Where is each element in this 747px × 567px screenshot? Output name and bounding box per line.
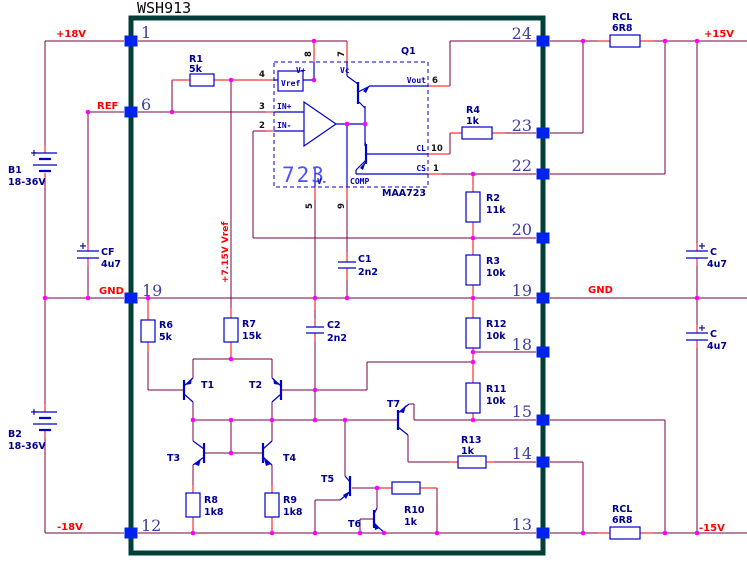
r10-val: 1k	[404, 517, 418, 528]
t3-label: T3	[167, 453, 180, 464]
resistor-rcl-bottom	[610, 527, 640, 539]
b2-ref: B2	[8, 429, 22, 440]
r7-ref: R7	[242, 319, 256, 330]
r11-ref: R11	[486, 384, 507, 395]
c1-val: 2n2	[358, 267, 378, 278]
resistor-r4	[462, 127, 492, 139]
pin-number-14: 14	[512, 444, 532, 463]
transistor-t6	[374, 508, 384, 532]
t7-label: T7	[387, 399, 400, 410]
resistor-r3	[466, 255, 480, 285]
net-label-plus15: +15V	[704, 29, 734, 40]
pin-square-18	[537, 347, 550, 358]
pin-number-24: 24	[512, 24, 532, 43]
c2-ref: C2	[327, 320, 341, 331]
pin-square-24	[537, 36, 550, 47]
c-top-val: 4u7	[707, 259, 727, 270]
pin-number-19-right: 19	[512, 281, 532, 300]
c-bottom-ref: C	[710, 329, 717, 340]
pin-number-6: 6	[141, 95, 151, 114]
r8-ref: R8	[204, 495, 218, 506]
pin-number-20: 20	[512, 220, 532, 239]
module-title: WSH913	[137, 0, 191, 17]
resistor-r8	[186, 493, 200, 517]
rcl-bottom-ref: RCL	[612, 504, 632, 515]
ic-num-cs: 1	[433, 164, 439, 174]
resistor-r1	[190, 74, 214, 86]
resistor-r12	[466, 318, 480, 348]
transistor-t1	[184, 378, 193, 402]
ic-label-vplus: V+	[296, 66, 306, 75]
c2-val: 2n2	[327, 333, 347, 344]
ic-num-vref: 4	[259, 70, 265, 80]
cap-cf	[77, 251, 99, 258]
ic-part-label: MAA723	[382, 188, 426, 199]
resistor-r11	[466, 383, 480, 413]
cap-c-top	[686, 251, 708, 258]
t4-label: T4	[283, 453, 296, 464]
pin-square-22	[537, 169, 550, 180]
pin-square-12	[125, 528, 138, 539]
r10-ref: R10	[404, 505, 425, 516]
pin-number-23: 23	[512, 116, 532, 135]
ic-vref-box-label: Vref	[281, 79, 300, 88]
r3-val: 10k	[486, 268, 506, 279]
t5-label: T5	[321, 474, 334, 485]
c-top-ref: C	[710, 247, 717, 258]
r4-ref: R4	[466, 105, 480, 116]
resistors	[141, 35, 640, 539]
net-label-ref: REF	[97, 101, 118, 112]
ic-label-vout: Vout	[407, 76, 426, 85]
c-top-plus-sign: +	[698, 241, 706, 252]
t1-label: T1	[201, 380, 214, 391]
resistor-rcl-top	[610, 35, 640, 47]
transistor-t5	[340, 476, 350, 500]
c1-ref: C1	[358, 254, 372, 265]
net-label-minus18: -18V	[57, 522, 83, 533]
ic-num-vout: 6	[432, 76, 438, 86]
ic-num-vplus: 8	[304, 51, 314, 57]
r7-val: 15k	[242, 331, 262, 342]
net-label-minus15: -15V	[699, 523, 725, 534]
b2-val: 18-36V	[8, 441, 46, 452]
ic-label-inplus: IN+	[277, 102, 292, 111]
schematic: WSH913	[0, 0, 747, 567]
resistor-r7	[224, 318, 238, 342]
r6-ref: R6	[159, 320, 173, 331]
pin-square-23	[537, 128, 550, 139]
ic-num-inminus: 2	[259, 121, 265, 131]
resistor-r13	[458, 456, 486, 468]
ic-label-comp: COMP	[350, 177, 369, 186]
r6-val: 5k	[159, 332, 173, 343]
r1-val: 5k	[189, 64, 203, 75]
transistor-t2	[272, 378, 281, 402]
pin-number-12: 12	[141, 516, 161, 535]
b1-val: 18-36V	[8, 177, 46, 188]
pin-number-15: 15	[512, 402, 532, 421]
net-label-plus18: +18V	[56, 29, 86, 40]
transistor-t4	[263, 441, 272, 466]
ic-label-vminus: V-	[317, 177, 327, 186]
net-label-gnd-right: GND	[588, 285, 613, 296]
pin-square-14	[537, 457, 550, 468]
resistor-r10	[392, 482, 420, 494]
opamp-triangle	[304, 102, 336, 146]
c-bottom-val: 4u7	[707, 341, 727, 352]
r8-val: 1k8	[204, 507, 224, 518]
cap-c2	[306, 327, 324, 333]
ic-label-inminus: IN-	[277, 121, 291, 130]
resistor-r9	[265, 493, 279, 517]
pin-square-1	[125, 36, 138, 47]
r9-ref: R9	[283, 495, 297, 506]
ic-num-cl: 10	[431, 144, 443, 154]
rcl-top-val: 6R8	[612, 23, 633, 34]
ic-label-cl: CL	[416, 144, 426, 153]
pin-number-18: 18	[512, 335, 532, 354]
ic-num-vc: 7	[337, 51, 347, 57]
r2-ref: R2	[486, 193, 500, 204]
resistor-r6	[141, 320, 155, 342]
b1-ref: B1	[8, 165, 22, 176]
r12-val: 10k	[486, 331, 506, 342]
r2-val: 11k	[486, 205, 506, 216]
c-bottom-plus-sign: +	[698, 323, 706, 334]
pin-number-1: 1	[141, 23, 151, 42]
r4-val: 1k	[466, 116, 480, 127]
pin-square-20	[537, 233, 550, 244]
b1-plus-sign: +	[30, 148, 38, 159]
ic-num-vminus: 5	[305, 203, 315, 209]
net-label-gnd-left: GND	[99, 286, 124, 297]
b2-plus-sign: +	[30, 407, 38, 418]
r11-val: 10k	[486, 396, 506, 407]
pin-square-13	[537, 528, 550, 539]
q1-designator: Q1	[401, 46, 416, 57]
schematic-svg: WSH913	[0, 0, 747, 567]
ic-label-vc: Vc	[340, 66, 350, 75]
pin-number-19-left: 19	[142, 281, 162, 300]
r9-val: 1k8	[283, 507, 303, 518]
t6-label: T6	[348, 519, 361, 530]
rcl-top-ref: RCL	[612, 12, 632, 23]
r13-ref: R13	[461, 435, 482, 446]
cf-ref: CF	[101, 247, 114, 258]
pin-number-22: 22	[512, 156, 532, 175]
pin-number-13: 13	[512, 515, 532, 534]
transistor-t3	[193, 441, 204, 466]
pin-square-19-right	[537, 293, 550, 304]
rcl-bottom-val: 6R8	[612, 515, 633, 526]
r3-ref: R3	[486, 256, 500, 267]
ic-num-inplus: 3	[259, 102, 265, 112]
ic-label-cs: CS	[416, 164, 426, 173]
ic-num-comp: 9	[337, 203, 347, 209]
r13-val: 1k	[461, 446, 475, 457]
pin-square-19-left	[125, 293, 138, 304]
r12-ref: R12	[486, 319, 507, 330]
cap-c1	[338, 262, 356, 268]
pin-square-6	[125, 107, 138, 118]
resistor-r2	[466, 192, 480, 222]
cf-plus-sign: +	[79, 241, 87, 252]
cap-c-bottom	[686, 333, 708, 340]
net-label-vref-rail: +7.15V Vref	[221, 222, 231, 283]
cf-val: 4u7	[101, 259, 121, 270]
t2-label: T2	[249, 380, 262, 391]
pin-square-15	[537, 415, 550, 426]
